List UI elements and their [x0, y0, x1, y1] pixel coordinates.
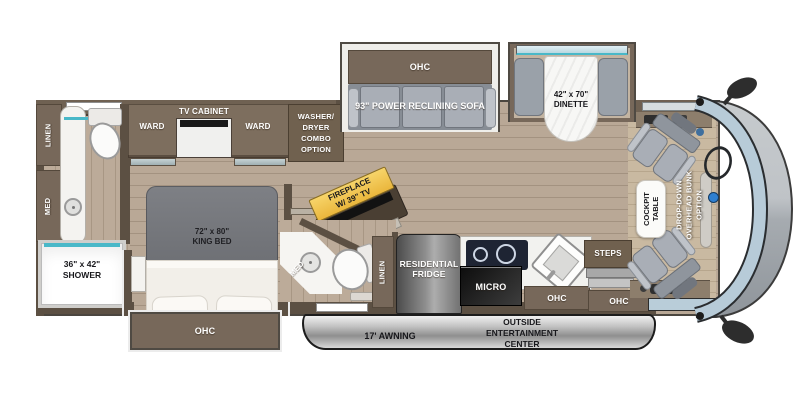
shower-text-label: SHOWER: [63, 270, 101, 281]
washer-line3: COMBO: [301, 133, 331, 144]
fridge-line2: FRIDGE: [412, 269, 445, 279]
cooktop-burner-small: [473, 247, 488, 262]
nightstand: [131, 256, 146, 292]
entertainment-line1: OUTSIDE: [503, 317, 541, 328]
wiper-top: [696, 98, 704, 106]
ward-right-label: WARD: [234, 120, 282, 134]
bed-text-label: KING BED: [192, 237, 231, 247]
dinette-bench-left: [514, 58, 544, 116]
step-tread-2: [588, 278, 634, 288]
washer-line4: OPTION: [301, 144, 331, 155]
midbath-linen-label: LINEN: [379, 260, 388, 284]
rear-med-cabinet: MED: [36, 170, 62, 242]
dinette-label: 42" x 70" DINETTE: [544, 86, 598, 114]
cockpit-table-line1: COCKPIT: [642, 192, 651, 226]
rear-med-label: MED: [45, 197, 54, 214]
washer-dryer-cabinet: WASHER/ DRYER COMBO OPTION: [288, 104, 344, 162]
bed-label: 72" x 80" KING BED: [156, 224, 268, 250]
dinette-size-label: 42" x 70": [554, 90, 588, 100]
kitchen-ohc: OHC: [524, 286, 590, 310]
glass-shelf-right: [234, 158, 286, 166]
glass-shelf-left: [130, 158, 176, 166]
entertainment-line2: ENTERTAINMENT: [486, 328, 558, 339]
washer-line2: DRYER: [303, 122, 330, 133]
sofa-ohc: OHC: [348, 50, 492, 84]
awning-label: 17' AWNING: [330, 330, 450, 343]
sofa-label: 93" POWER RECLINING SOFA: [340, 99, 500, 113]
front-cap: [688, 70, 800, 360]
micro-label: MICRO: [460, 280, 522, 294]
cockpit-table-line2: TABLE: [651, 197, 660, 221]
shower-size-label: 36" x 42": [64, 259, 100, 270]
floorplan-canvas: LINEN MED 36" x 42" SHOWER WARD TV CABIN…: [0, 0, 800, 408]
tv-cabinet-label: TV CABINET: [166, 106, 242, 117]
dinette-text-label: DINETTE: [554, 100, 588, 110]
rear-sink-drain: [72, 206, 75, 209]
shower-glass-strip: [44, 243, 120, 247]
cooktop-burner-large: [496, 244, 516, 264]
washer-line1: WASHER/: [298, 111, 334, 122]
rear-linen-cabinet: LINEN: [36, 104, 62, 166]
entertainment-line3: CENTER: [505, 339, 540, 350]
midbath-linen-cabinet: LINEN: [372, 236, 394, 308]
ward-left-label: WARD: [130, 120, 174, 134]
rear-vanity-counter: [60, 106, 86, 244]
mirror-bottom-arm: [721, 316, 728, 325]
bunk-line1: DROP-DOWN: [674, 180, 684, 230]
dinette-bench-right: [598, 58, 628, 116]
bed-size-label: 72" x 80": [195, 227, 229, 237]
midbath-window: [316, 303, 368, 312]
shower-label: 36" x 42" SHOWER: [42, 256, 122, 284]
wiper-bottom: [696, 312, 704, 320]
entertainment-label: OUTSIDE ENTERTAINMENT CENTER: [452, 316, 592, 350]
fridge-line1: RESIDENTIAL: [400, 259, 459, 269]
dinette-window: [516, 45, 628, 55]
tv-icon: [180, 120, 228, 127]
bed-ohc: OHC: [130, 312, 280, 350]
fridge-label: RESIDENTIAL FRIDGE: [396, 256, 462, 282]
rear-linen-label: LINEN: [45, 123, 54, 147]
